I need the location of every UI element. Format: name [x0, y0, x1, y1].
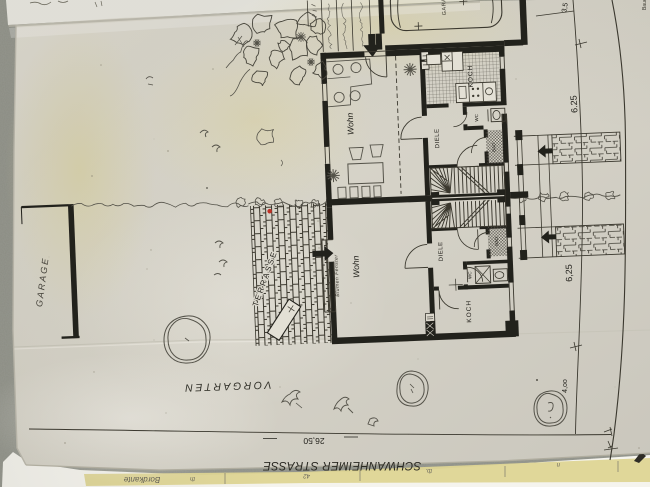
svg-text:4,oo: 4,oo	[562, 379, 569, 393]
svg-text:WC: WC	[474, 113, 479, 121]
svg-text:6.25: 6.25	[569, 95, 580, 113]
svg-text:KOCH: KOCH	[467, 64, 475, 87]
svg-text:BAD: BAD	[491, 142, 496, 152]
svg-text:SCHWANHEIMER STRASSE: SCHWANHEIMER STRASSE	[263, 459, 422, 471]
svg-text:Wohn: Wohn	[345, 112, 356, 135]
svg-text:6,25: 6,25	[564, 264, 574, 282]
svg-text:KOCH: KOCH	[465, 300, 473, 323]
svg-text:BAD: BAD	[494, 236, 499, 246]
svg-text:Wohn: Wohn	[351, 255, 362, 278]
svg-text:WC: WC	[467, 271, 472, 279]
svg-text:26,50: 26,50	[303, 436, 325, 446]
svg-text:DIELE: DIELE	[434, 128, 441, 148]
svg-text:DIELE: DIELE	[438, 241, 445, 261]
svg-text:GARAGE: GARAGE	[441, 0, 448, 15]
svg-text:Baueingabe: Baueingabe	[642, 0, 648, 10]
